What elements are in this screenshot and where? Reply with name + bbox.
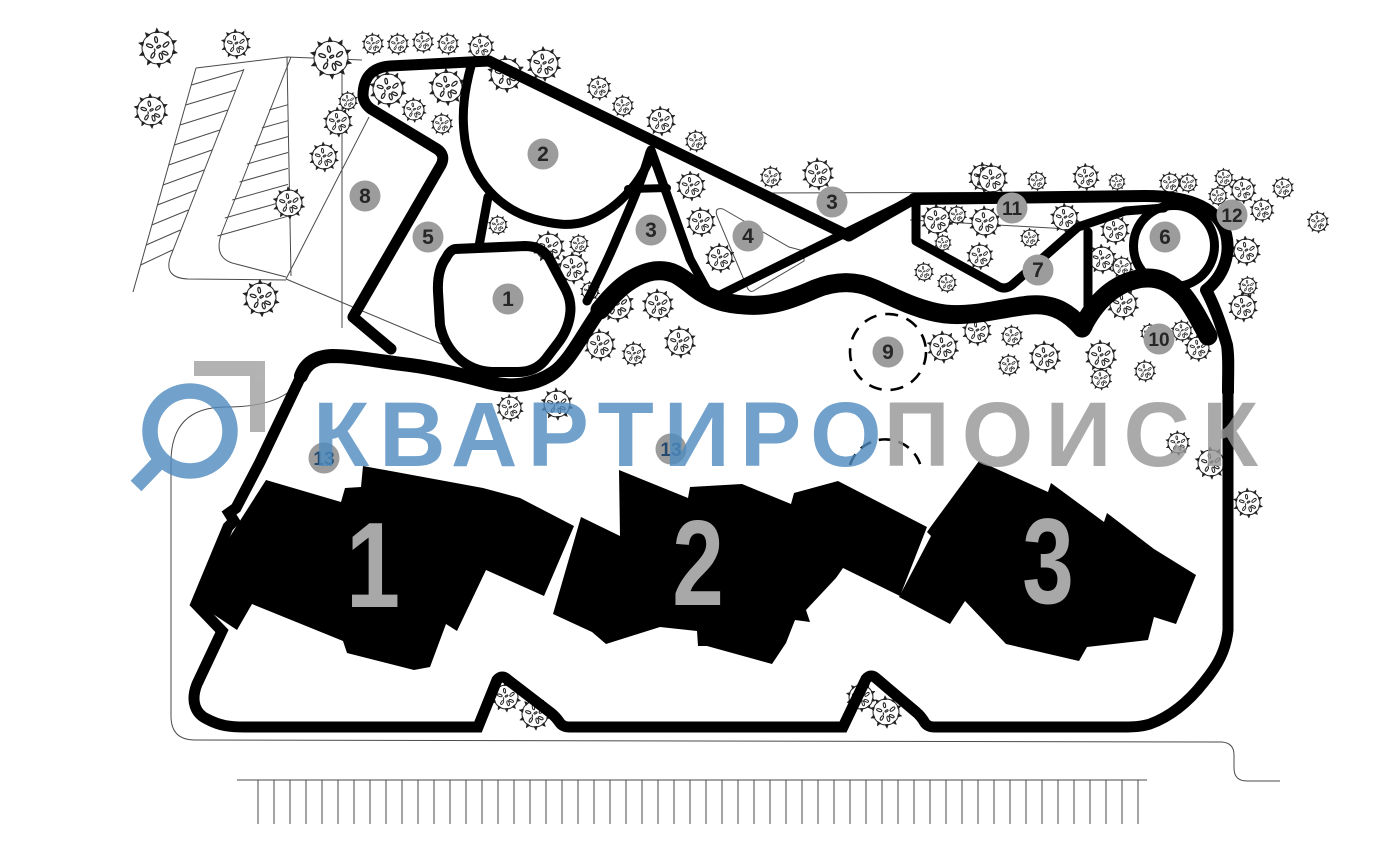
- svg-text:3: 3: [826, 191, 838, 214]
- svg-text:2: 2: [537, 143, 549, 166]
- svg-text:1: 1: [346, 498, 400, 634]
- svg-text:КВАРТИРОПОИСК: КВАРТИРОПОИСК: [313, 384, 1270, 486]
- svg-text:7: 7: [1032, 259, 1044, 282]
- svg-text:8: 8: [359, 185, 371, 208]
- svg-text:9: 9: [882, 341, 894, 364]
- svg-text:10: 10: [1148, 330, 1169, 351]
- svg-text:6: 6: [1159, 226, 1171, 249]
- svg-text:12: 12: [1221, 206, 1242, 227]
- svg-text:1: 1: [502, 288, 514, 311]
- svg-text:2: 2: [672, 495, 724, 631]
- svg-text:3: 3: [645, 219, 657, 242]
- svg-text:11: 11: [1002, 199, 1023, 220]
- svg-text:3: 3: [1022, 493, 1074, 629]
- svg-text:5: 5: [422, 226, 434, 249]
- svg-text:4: 4: [742, 225, 754, 248]
